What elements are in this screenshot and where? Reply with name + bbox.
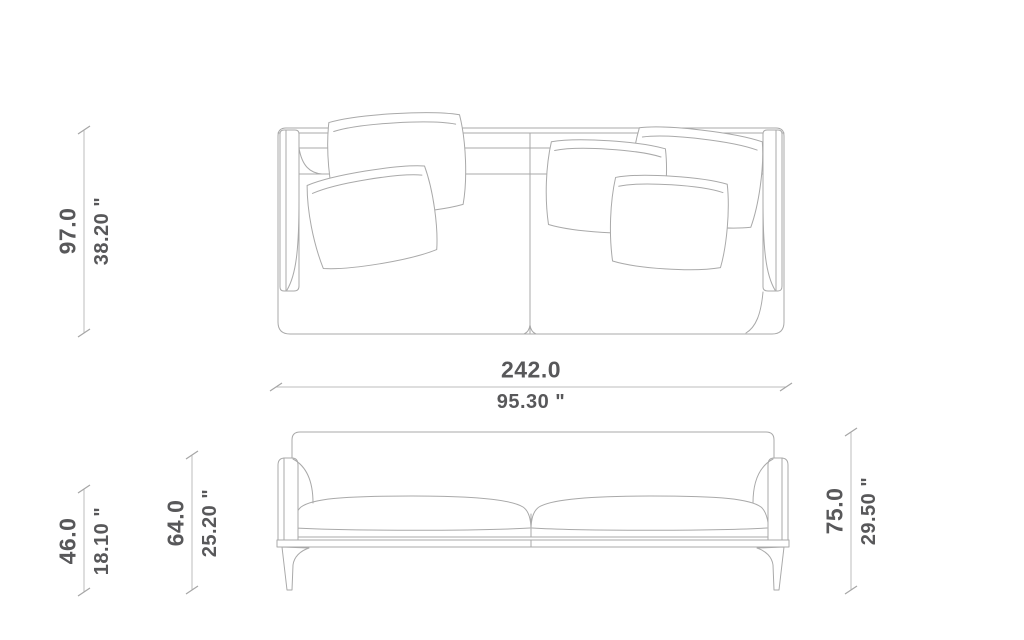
- sofa-front-view: [277, 432, 789, 590]
- pillow-front-right: [607, 172, 730, 273]
- overall-height-inches-label: 29.50 ": [859, 477, 879, 546]
- depth-inches-label: 38.20 ": [92, 197, 112, 266]
- seat-height-inches-label: 18.10 ": [92, 507, 112, 576]
- sofa-dimension-diagram: 97.0 38.20 " 242.0 95.30 " 46.0 18.10 " …: [0, 0, 1024, 640]
- width-cm-label: 242.0: [501, 359, 561, 382]
- sofa-top-view: [278, 110, 784, 334]
- depth-cm-label: 97.0: [57, 208, 80, 255]
- seat-height-cm-label: 46.0: [57, 518, 80, 565]
- arm-height-cm-label: 64.0: [165, 500, 188, 547]
- width-inches-label: 95.30 ": [497, 392, 566, 412]
- overall-height-cm-label: 75.0: [824, 488, 847, 535]
- dimension-line-width: [270, 383, 792, 391]
- arm-height-inches-label: 25.20 ": [200, 489, 220, 558]
